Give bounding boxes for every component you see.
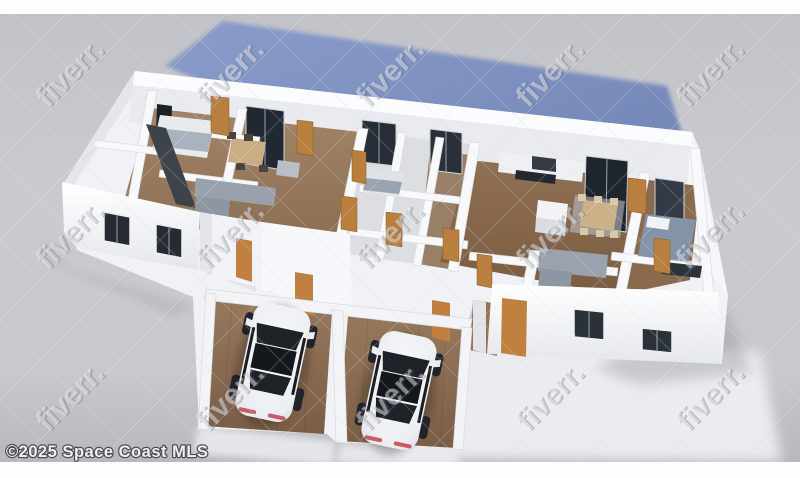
floorplan-3d-render: fiverr. fiverr. bbox=[0, 0, 800, 478]
mls-photo-canvas: fiverr. fiverr. bbox=[0, 0, 800, 478]
watermark-overlay bbox=[0, 14, 800, 462]
white-strip-bottom bbox=[0, 462, 800, 478]
white-strip-top bbox=[0, 0, 800, 14]
copyright-text: ©2025 Space Coast MLS bbox=[6, 443, 208, 461]
